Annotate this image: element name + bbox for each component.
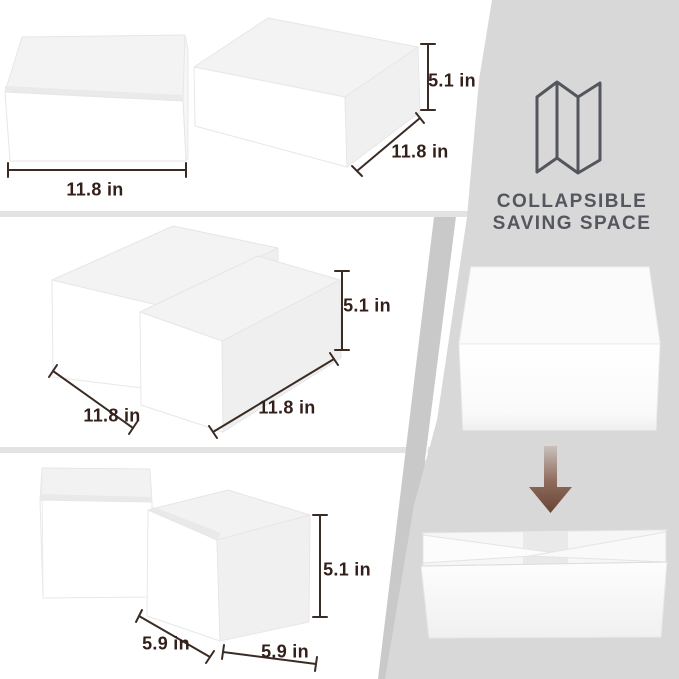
collapsed-box-illustration — [421, 530, 667, 638]
headline-line1: COLLAPSIBLE — [497, 191, 648, 213]
dimension-label-middle-depth: 11.8 in — [258, 398, 315, 419]
dimension-label-middle-height: 5.1 in — [343, 296, 391, 317]
dimension-label-bottom-width: 5.9 in — [142, 634, 190, 655]
dimension-label-bottom-depth: 5.9 in — [261, 642, 309, 663]
dimension-label-middle-width: 11.8 in — [83, 406, 140, 427]
headline-line2: SAVING SPACE — [493, 213, 652, 235]
dimension-label-bottom-height: 5.1 in — [323, 560, 371, 581]
top-section-boxes — [5, 18, 420, 167]
bottom-section-boxes — [40, 468, 310, 641]
product-infographic: 11.8 in 5.1 in 11.8 in 11.8 in 11.8 in 5… — [0, 0, 679, 679]
assembled-box-illustration — [459, 267, 660, 430]
dimension-label-top-depth: 11.8 in — [391, 142, 448, 163]
dimension-label-top-height: 5.1 in — [428, 71, 476, 92]
dimension-label-top-width: 11.8 in — [66, 180, 123, 201]
